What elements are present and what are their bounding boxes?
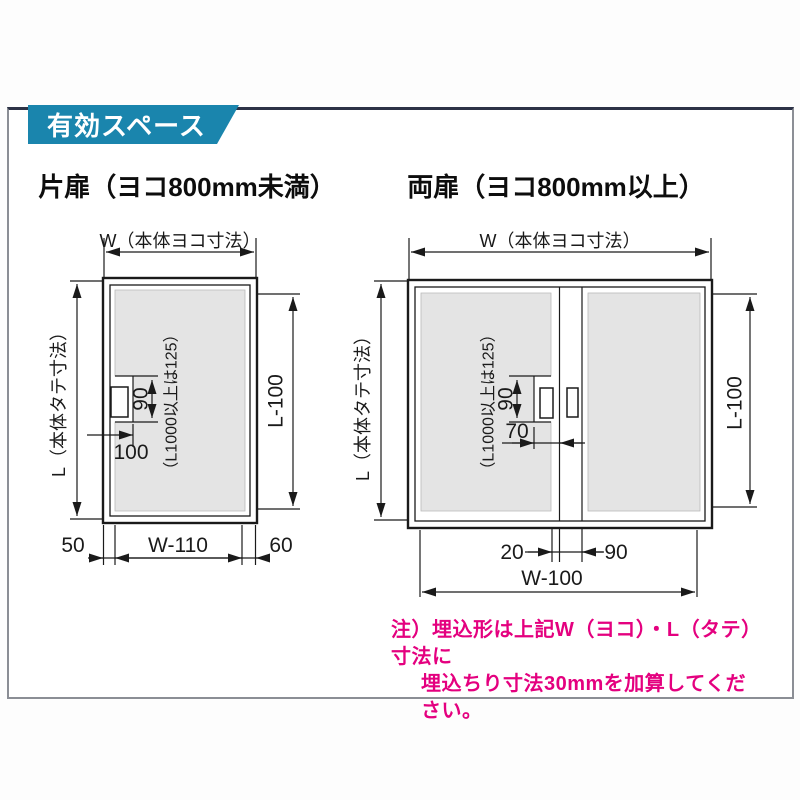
single-dim-l-minus-100: L-100	[265, 374, 288, 428]
single-door-diagram: 片扉（ヨコ800mm未満） W（本体ヨコ寸法） 90 100 （L1000以上は…	[38, 172, 336, 565]
double-left-door-handle	[540, 388, 553, 418]
double-right-effective-area	[588, 293, 700, 511]
single-dim-handle-height: 90	[130, 387, 153, 410]
note-line-1: 注）埋込形は上記W（ヨコ）・L（タテ）寸法に	[391, 619, 752, 668]
double-dim-handle-height: 90	[495, 387, 518, 410]
double-dim-tall-note: （L1000以上は125）	[480, 326, 498, 477]
double-dim-opening-width: W-100	[521, 567, 582, 590]
single-dim-handle-offset: 100	[113, 441, 148, 464]
double-door-diagram: 両扉（ヨコ800mm以上） W（本体ヨコ寸法） 90 70 （L1000以上は1…	[353, 172, 757, 597]
embedded-type-note: 注）埋込形は上記W（ヨコ）・L（タテ）寸法に 埋込ちり寸法30mmを加算してくだ…	[391, 617, 761, 725]
double-dim-width-label: W（本体ヨコ寸法）	[480, 231, 641, 251]
single-door-title: 片扉（ヨコ800mm未満）	[38, 172, 336, 202]
single-door-handle	[111, 387, 128, 417]
single-dim-width-label: W（本体ヨコ寸法）	[100, 231, 261, 251]
double-right-door-handle	[567, 388, 578, 417]
note-line-2: 埋込ちり寸法30mmを加算してください。	[421, 671, 761, 725]
double-door-title: 両扉（ヨコ800mm以上）	[407, 172, 705, 202]
double-dim-center-inset: 20	[500, 541, 523, 564]
double-dim-l-minus-100: L-100	[724, 376, 747, 430]
single-dim-tall-note: （L1000以上は125）	[163, 326, 181, 477]
single-dim-opening-width: W-110	[148, 534, 208, 557]
single-dim-right-inset: 60	[269, 534, 292, 557]
double-dim-right-clearance: 90	[604, 541, 627, 564]
double-dim-handle-offset: 70	[505, 420, 528, 443]
single-dim-left-inset: 50	[61, 534, 84, 557]
single-dim-height-label: L（本体タテ寸法）	[49, 323, 69, 477]
double-dim-height-label: L（本体タテ寸法）	[353, 327, 373, 481]
